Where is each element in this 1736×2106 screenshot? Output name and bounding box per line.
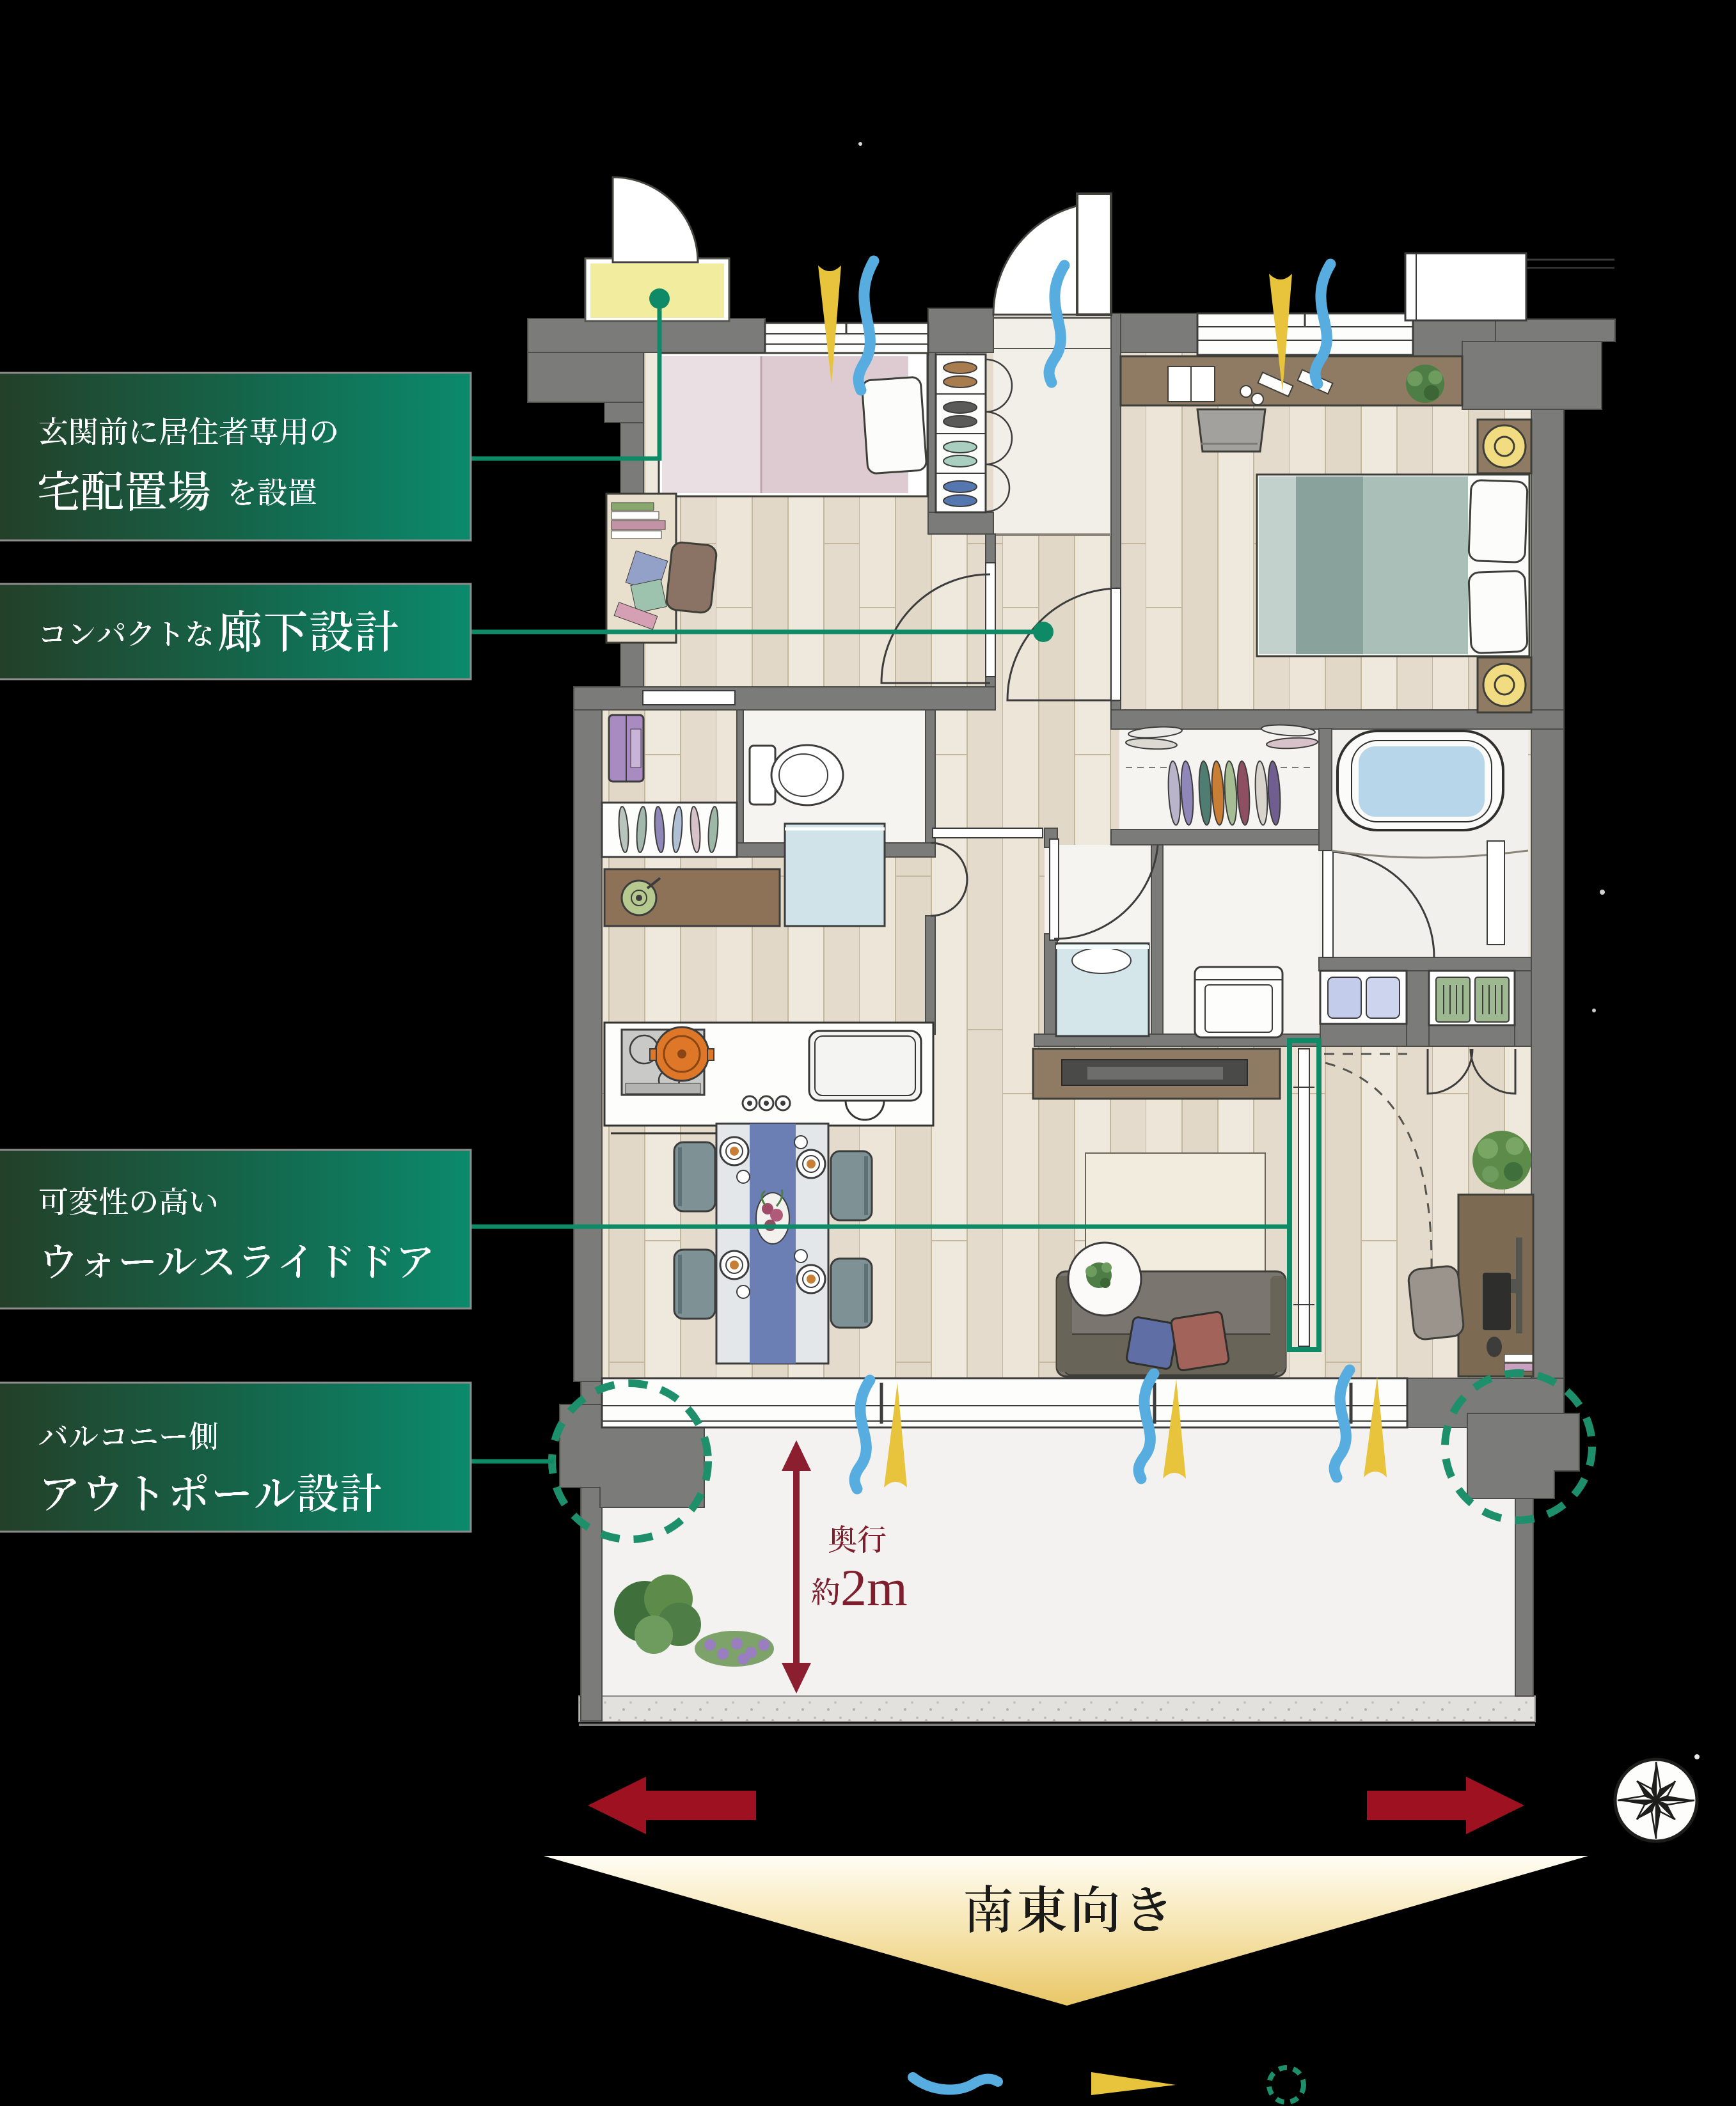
svg-text:2m: 2m [840, 1559, 908, 1617]
